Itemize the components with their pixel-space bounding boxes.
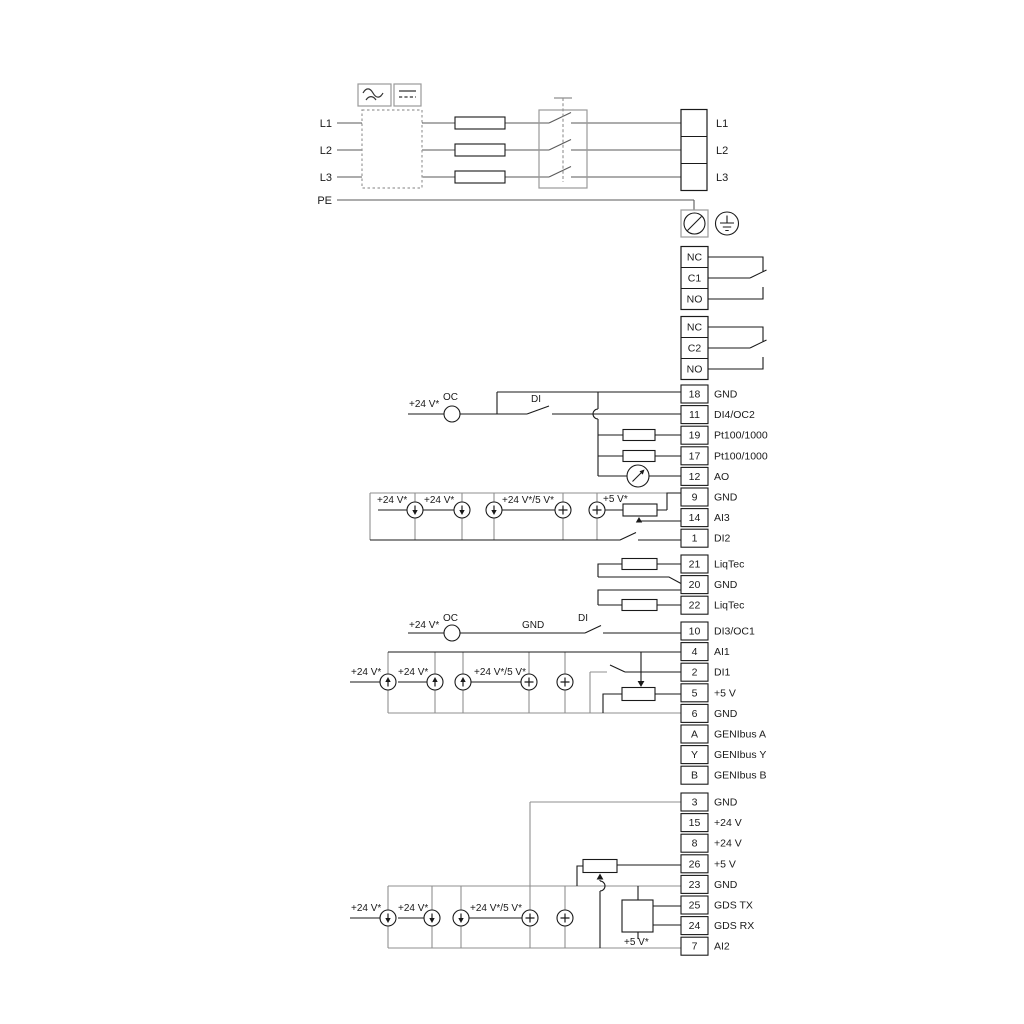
mains-input-label-L2: L2 [320, 145, 332, 157]
strip2-wiring [350, 652, 681, 713]
current-source-icon [455, 674, 471, 690]
filter-box [362, 110, 422, 188]
gds-module-box [622, 900, 653, 932]
terminal-label-3: GND [714, 797, 738, 809]
mains-input-labels: L1L2L3PE [317, 118, 332, 207]
current-source-icon [407, 502, 423, 518]
terminal-label-B: GENIbus B [714, 770, 767, 782]
relay-block-relay2: NCC2NO [681, 317, 708, 380]
relay1-contact [708, 257, 767, 299]
power-wires [337, 123, 694, 210]
relay-cell-NC: NC [687, 322, 703, 334]
terminal-number-3: 3 [692, 797, 698, 809]
terminal-number-24: 24 [689, 920, 701, 932]
label-5v: +5 V* [603, 494, 628, 505]
label-24v: +24 V* [409, 620, 439, 631]
terminal-strip-group1: 18GND11DI4/OC219Pt100/100017Pt100/100012… [681, 385, 768, 547]
terminal-number-1: 1 [692, 533, 698, 545]
terminal-label-15: +24 V [714, 817, 742, 829]
mains-input-label-L3: L3 [320, 172, 332, 184]
mains-output-label-L1: L1 [716, 118, 728, 130]
terminal-label-21: LiqTec [714, 559, 744, 571]
relay-contact-wiring [708, 257, 767, 369]
terminal-label-24: GDS RX [714, 920, 754, 932]
main-switch-blades [549, 113, 571, 178]
terminal-label-19: Pt100/1000 [714, 430, 768, 442]
terminal-number-6: 6 [692, 708, 698, 720]
voltage-source-icon [557, 910, 573, 926]
resistor-icon [622, 559, 657, 570]
fuse-icon [455, 171, 505, 183]
terminal-label-1: DI2 [714, 533, 731, 545]
label-24v: +24 V* [377, 495, 407, 506]
terminal-label-A: GENIbus A [714, 729, 766, 741]
open-collector-icon [444, 406, 460, 422]
terminal-label-26: +5 V [714, 858, 736, 870]
terminal-number-21: 21 [689, 559, 701, 571]
terminal-number-14: 14 [689, 512, 701, 524]
terminal-number-15: 15 [689, 817, 701, 829]
terminal-label-23: GND [714, 879, 738, 891]
label-5v: +5 V* [624, 937, 649, 948]
fuse-icon [455, 117, 505, 129]
mains-output-label-L3: L3 [716, 172, 728, 184]
terminal-number-7: 7 [692, 941, 698, 953]
terminal-number-17: 17 [689, 450, 701, 462]
label-gnd: GND [522, 620, 544, 631]
label-24v: +24 V* [351, 903, 381, 914]
resistor-icon [623, 451, 655, 462]
resistor-icon [622, 600, 657, 611]
mains-input-label-L1: L1 [320, 118, 332, 130]
terminal-strip-group3: 3GND15+24 V8+24 V26+5 V23GND25GDS TX24GD… [681, 793, 754, 955]
terminal-number-2: 2 [692, 667, 698, 679]
current-source-icon [427, 674, 443, 690]
terminal-number-25: 25 [689, 900, 701, 912]
terminal-number-19: 19 [689, 430, 701, 442]
relay-cell-NC: NC [687, 252, 703, 264]
label-24v: +24 V* [398, 903, 428, 914]
terminal-label-11: DI4/OC2 [714, 409, 755, 421]
terminal-label-25: GDS TX [714, 900, 753, 912]
terminal-label-Y: GENIbus Y [714, 749, 766, 761]
voltage-source-icon [555, 502, 571, 518]
wiring-diagram: +24 V* OC DI +24 V* +24 V* +24 V*/5 V* +… [0, 0, 1024, 1024]
terminal-label-2: DI1 [714, 667, 731, 679]
source-symbols [380, 406, 605, 926]
terminal-number-A: A [691, 729, 698, 741]
strip2-wires [350, 652, 681, 713]
terminal-number-18: 18 [689, 389, 701, 401]
current-source-icon [453, 910, 469, 926]
relay-cell-NO: NO [687, 364, 703, 376]
terminal-label-20: GND [714, 579, 738, 591]
label-24v: +24 V* [424, 495, 454, 506]
terminal-number-22: 22 [689, 600, 701, 612]
label-di: DI [531, 394, 541, 405]
current-source-icon [380, 910, 396, 926]
terminal-label-22: LiqTec [714, 600, 744, 612]
terminal-number-9: 9 [692, 492, 698, 504]
terminal-number-B: B [691, 770, 698, 782]
potentiometer-icon [583, 860, 617, 880]
screw-terminal-icon [681, 210, 708, 237]
mains-output-label-L2: L2 [716, 145, 728, 157]
terminal-label-10: DI3/OC1 [714, 626, 755, 638]
terminal-label-8: +24 V [714, 838, 742, 850]
terminal-number-Y: Y [691, 749, 698, 761]
ao-meter-icon [627, 465, 649, 487]
label-di: DI [578, 613, 588, 624]
liqtec-wiring [598, 559, 681, 611]
strip3-wiring [350, 802, 681, 948]
terminal-label-12: AO [714, 471, 729, 483]
potentiometer-icon [622, 681, 655, 701]
label-24v-5v: +24 V*/5 V* [474, 667, 526, 678]
label-24v: +24 V* [398, 667, 428, 678]
relay-cell-NO: NO [687, 294, 703, 306]
terminal-strip-liqtec: 21LiqTec20GND22LiqTec [681, 555, 744, 614]
terminal-number-20: 20 [689, 579, 701, 591]
terminal-label-17: Pt100/1000 [714, 450, 768, 462]
relay2-contact [708, 327, 767, 369]
potentiometer-icon [623, 504, 657, 523]
relay-block-relay1: NCC1NO [681, 247, 708, 310]
terminal-number-4: 4 [692, 646, 698, 658]
label-24v: +24 V* [351, 667, 381, 678]
terminal-number-10: 10 [689, 626, 701, 638]
label-oc: OC [443, 613, 458, 624]
dc-line-icon [394, 84, 421, 106]
terminal-strip-group2: 10DI3/OC14AI12DI15+5 V6GNDAGENIbus AYGEN… [681, 622, 767, 784]
wiring-diagram-page: +24 V* OC DI +24 V* +24 V* +24 V*/5 V* +… [0, 0, 1024, 1024]
terminal-number-23: 23 [689, 879, 701, 891]
open-collector-icon [444, 625, 460, 641]
terminal-label-18: GND [714, 389, 738, 401]
terminal-label-14: AI3 [714, 512, 730, 524]
voltage-source-icon [522, 910, 538, 926]
label-24v-5v: +24 V*/5 V* [502, 495, 554, 506]
ac-wave-icon [358, 84, 391, 106]
terminal-number-8: 8 [692, 838, 698, 850]
current-source-icon [380, 674, 396, 690]
current-source-icon [486, 502, 502, 518]
terminal-label-4: AI1 [714, 646, 730, 658]
terminal-number-11: 11 [689, 409, 700, 421]
terminal-label-6: GND [714, 708, 738, 720]
label-oc: OC [443, 392, 458, 403]
relay-cell-C2: C2 [688, 343, 702, 355]
mains-block-outline [681, 110, 707, 191]
terminal-label-5: +5 V [714, 687, 736, 699]
current-source-icon [454, 502, 470, 518]
liqtec-wires [598, 564, 681, 605]
fuse-icon [455, 144, 505, 156]
label-24v-5v: +24 V*/5 V* [470, 903, 522, 914]
mains-input-label-PE: PE [317, 195, 332, 207]
label-24v: +24 V* [409, 399, 439, 410]
terminal-label-9: GND [714, 492, 738, 504]
terminal-number-26: 26 [689, 858, 701, 870]
relay-cell-C1: C1 [688, 273, 702, 285]
voltage-source-icon [557, 674, 573, 690]
power-section [337, 84, 739, 237]
terminal-label-7: AI2 [714, 941, 730, 953]
mains-output-block: L1L2L3 [681, 110, 728, 191]
earth-ground-icon [716, 212, 739, 235]
terminal-number-12: 12 [689, 471, 701, 483]
resistor-icon [623, 430, 655, 441]
terminal-number-5: 5 [692, 687, 698, 699]
